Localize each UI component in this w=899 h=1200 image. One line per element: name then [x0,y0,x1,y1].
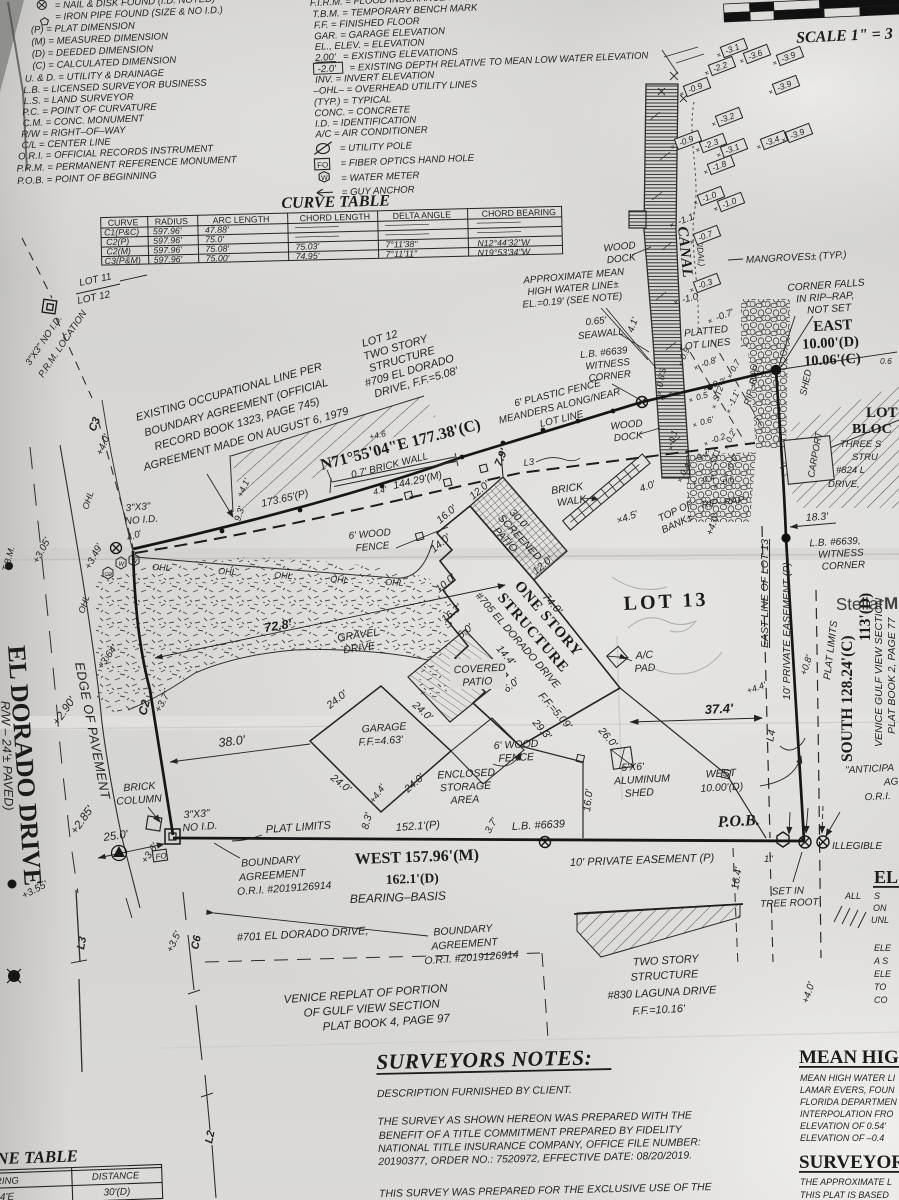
svg-text:THIS PLAT IS BASED: THIS PLAT IS BASED [800,1190,889,1200]
svg-text:OHL: OHL [274,570,293,581]
svg-text:W: W [321,175,328,182]
svg-text:LOT 13: LOT 13 [623,589,709,615]
svg-text:R/W – 24'± PAVED): R/W – 24'± PAVED) [0,701,16,811]
svg-text:MEAN HIGH WATER LI: MEAN HIGH WATER LI [800,1073,896,1083]
svg-text:NO I.D.: NO I.D. [182,820,218,834]
svg-text:AG: AG [883,777,899,789]
svg-text:ELEVATION OF –0.4: ELEVATION OF –0.4 [800,1133,884,1143]
svg-text:EAST LINE OF LOT 13: EAST LINE OF LOT 13 [759,539,771,648]
svg-text:162.1'(D): 162.1'(D) [386,870,439,887]
svg-text:DISTANCE: DISTANCE [92,1170,140,1183]
svg-text:OHL: OHL [385,577,404,588]
svg-text:MEAN HIG: MEAN HIG [799,1047,899,1068]
svg-text:UNL: UNL [871,915,889,925]
svg-text:BRICK: BRICK [123,780,157,794]
svg-text:O.R.I.: O.R.I. [864,791,891,803]
svg-text:STRU: STRU [852,452,878,463]
svg-text:PLAT BOOK 2, PAGE 77: PLAT BOOK 2, PAGE 77 [886,617,898,734]
svg-text:—————: ————— [384,228,429,239]
svg-text:AREA: AREA [449,793,479,807]
svg-text:LINE TABLE: LINE TABLE [0,1146,78,1168]
svg-text:S: S [874,891,880,901]
svg-text:ALL: ALL [844,891,861,901]
svg-text:N19°53'34"W: N19°53'34"W [477,247,530,258]
svg-text:L3: L3 [75,936,89,951]
svg-text:ELE: ELE [874,969,892,979]
svg-text:3"X3": 3"X3" [125,501,151,514]
svg-text:SOUTH 128.24'(C): SOUTH 128.24'(C) [839,635,856,762]
svg-text:VENICE GULF VIEW SECTION: VENICE GULF VIEW SECTION [873,597,885,747]
svg-text:DRIVE,: DRIVE, [828,479,860,490]
svg-text:#824 L: #824 L [836,465,865,476]
svg-text:ELEVATION OF 0.54': ELEVATION OF 0.54' [800,1121,886,1131]
svg-text:StellarMLS: StellarMLS [836,594,899,614]
svg-text:OHL: OHL [152,562,171,573]
svg-text:3"X3": 3"X3" [183,807,211,821]
svg-text:S89°54'E: S89°54'E [0,1192,15,1200]
svg-text:74.95': 74.95' [296,251,320,262]
svg-text:TREE ROOT: TREE ROOT [760,897,820,910]
svg-text:ARC LENGTH: ARC LENGTH [213,214,270,225]
svg-text:—————: ————— [294,230,339,241]
svg-text:SHED: SHED [624,786,654,800]
svg-text:10' PRIVATE EASEMENT (P): 10' PRIVATE EASEMENT (P) [781,562,793,700]
svg-text:OHL: OHL [330,574,349,585]
svg-text:A/C: A/C [634,649,654,662]
svg-text:10.06'(C): 10.06'(C) [804,351,862,370]
svg-text:SET IN: SET IN [772,885,805,897]
svg-text:LOT: LOT [866,405,898,421]
svg-text:ELE: ELE [874,943,892,953]
svg-text:0.6: 0.6 [880,356,892,366]
svg-text:FENCE: FENCE [498,751,535,765]
svg-text:75.00': 75.00' [206,253,230,264]
svg-text:FO: FO [317,160,328,169]
svg-text:FLORIDA DEPARTMEN: FLORIDA DEPARTMEN [800,1097,897,1107]
svg-text:10.00'(D): 10.00'(D) [802,334,860,353]
svg-text:LAMAR EVERS, FOUN: LAMAR EVERS, FOUN [800,1085,895,1095]
svg-text:6' WOOD: 6' WOOD [493,738,539,752]
svg-text:INTERPOLATION FRO: INTERPOLATION FRO [800,1109,893,1119]
svg-text:PATIO: PATIO [462,675,493,689]
svg-text:7°11'11": 7°11'11" [385,248,418,259]
svg-text:TO: TO [874,982,886,992]
svg-text:10.00'(D): 10.00'(D) [700,781,743,795]
svg-text:WEST: WEST [705,767,738,781]
svg-text:THE APPROXIMATE L: THE APPROXIMATE L [800,1177,892,1187]
svg-text:BEARING: BEARING [0,1175,19,1187]
svg-text:ON: ON [873,903,887,913]
svg-text:CURVE TABLE: CURVE TABLE [281,193,390,213]
svg-text:37.4': 37.4' [704,700,734,717]
svg-text:P.O.B.: P.O.B. [716,812,760,831]
svg-text:SURVEYOR: SURVEYOR [799,1152,899,1173]
svg-text:THREE S: THREE S [840,439,882,450]
svg-text:EL: EL [874,867,898,887]
svg-text:FO: FO [155,851,167,861]
svg-text:18.3': 18.3' [805,510,829,524]
svg-text:CO: CO [105,572,113,578]
svg-text:ILLEGIBLE: ILLEGIBLE [832,841,882,852]
svg-text:1": 1" [764,854,773,865]
svg-text:597.96': 597.96' [154,254,183,265]
svg-text:CORNER: CORNER [821,559,865,572]
svg-text:—————: ————— [476,226,521,237]
svg-text:A S: A S [873,956,888,966]
svg-text:CO: CO [874,995,888,1005]
svg-text:5'X6': 5'X6' [621,761,645,774]
svg-text:BLOC: BLOC [852,422,892,437]
svg-text:EAST: EAST [813,317,853,335]
svg-text:0.65': 0.65' [585,315,608,328]
svg-text:OHL: OHL [218,566,237,577]
svg-text:30'(D): 30'(D) [103,1187,130,1199]
svg-text:C3(P&M): C3(P&M) [105,255,141,266]
